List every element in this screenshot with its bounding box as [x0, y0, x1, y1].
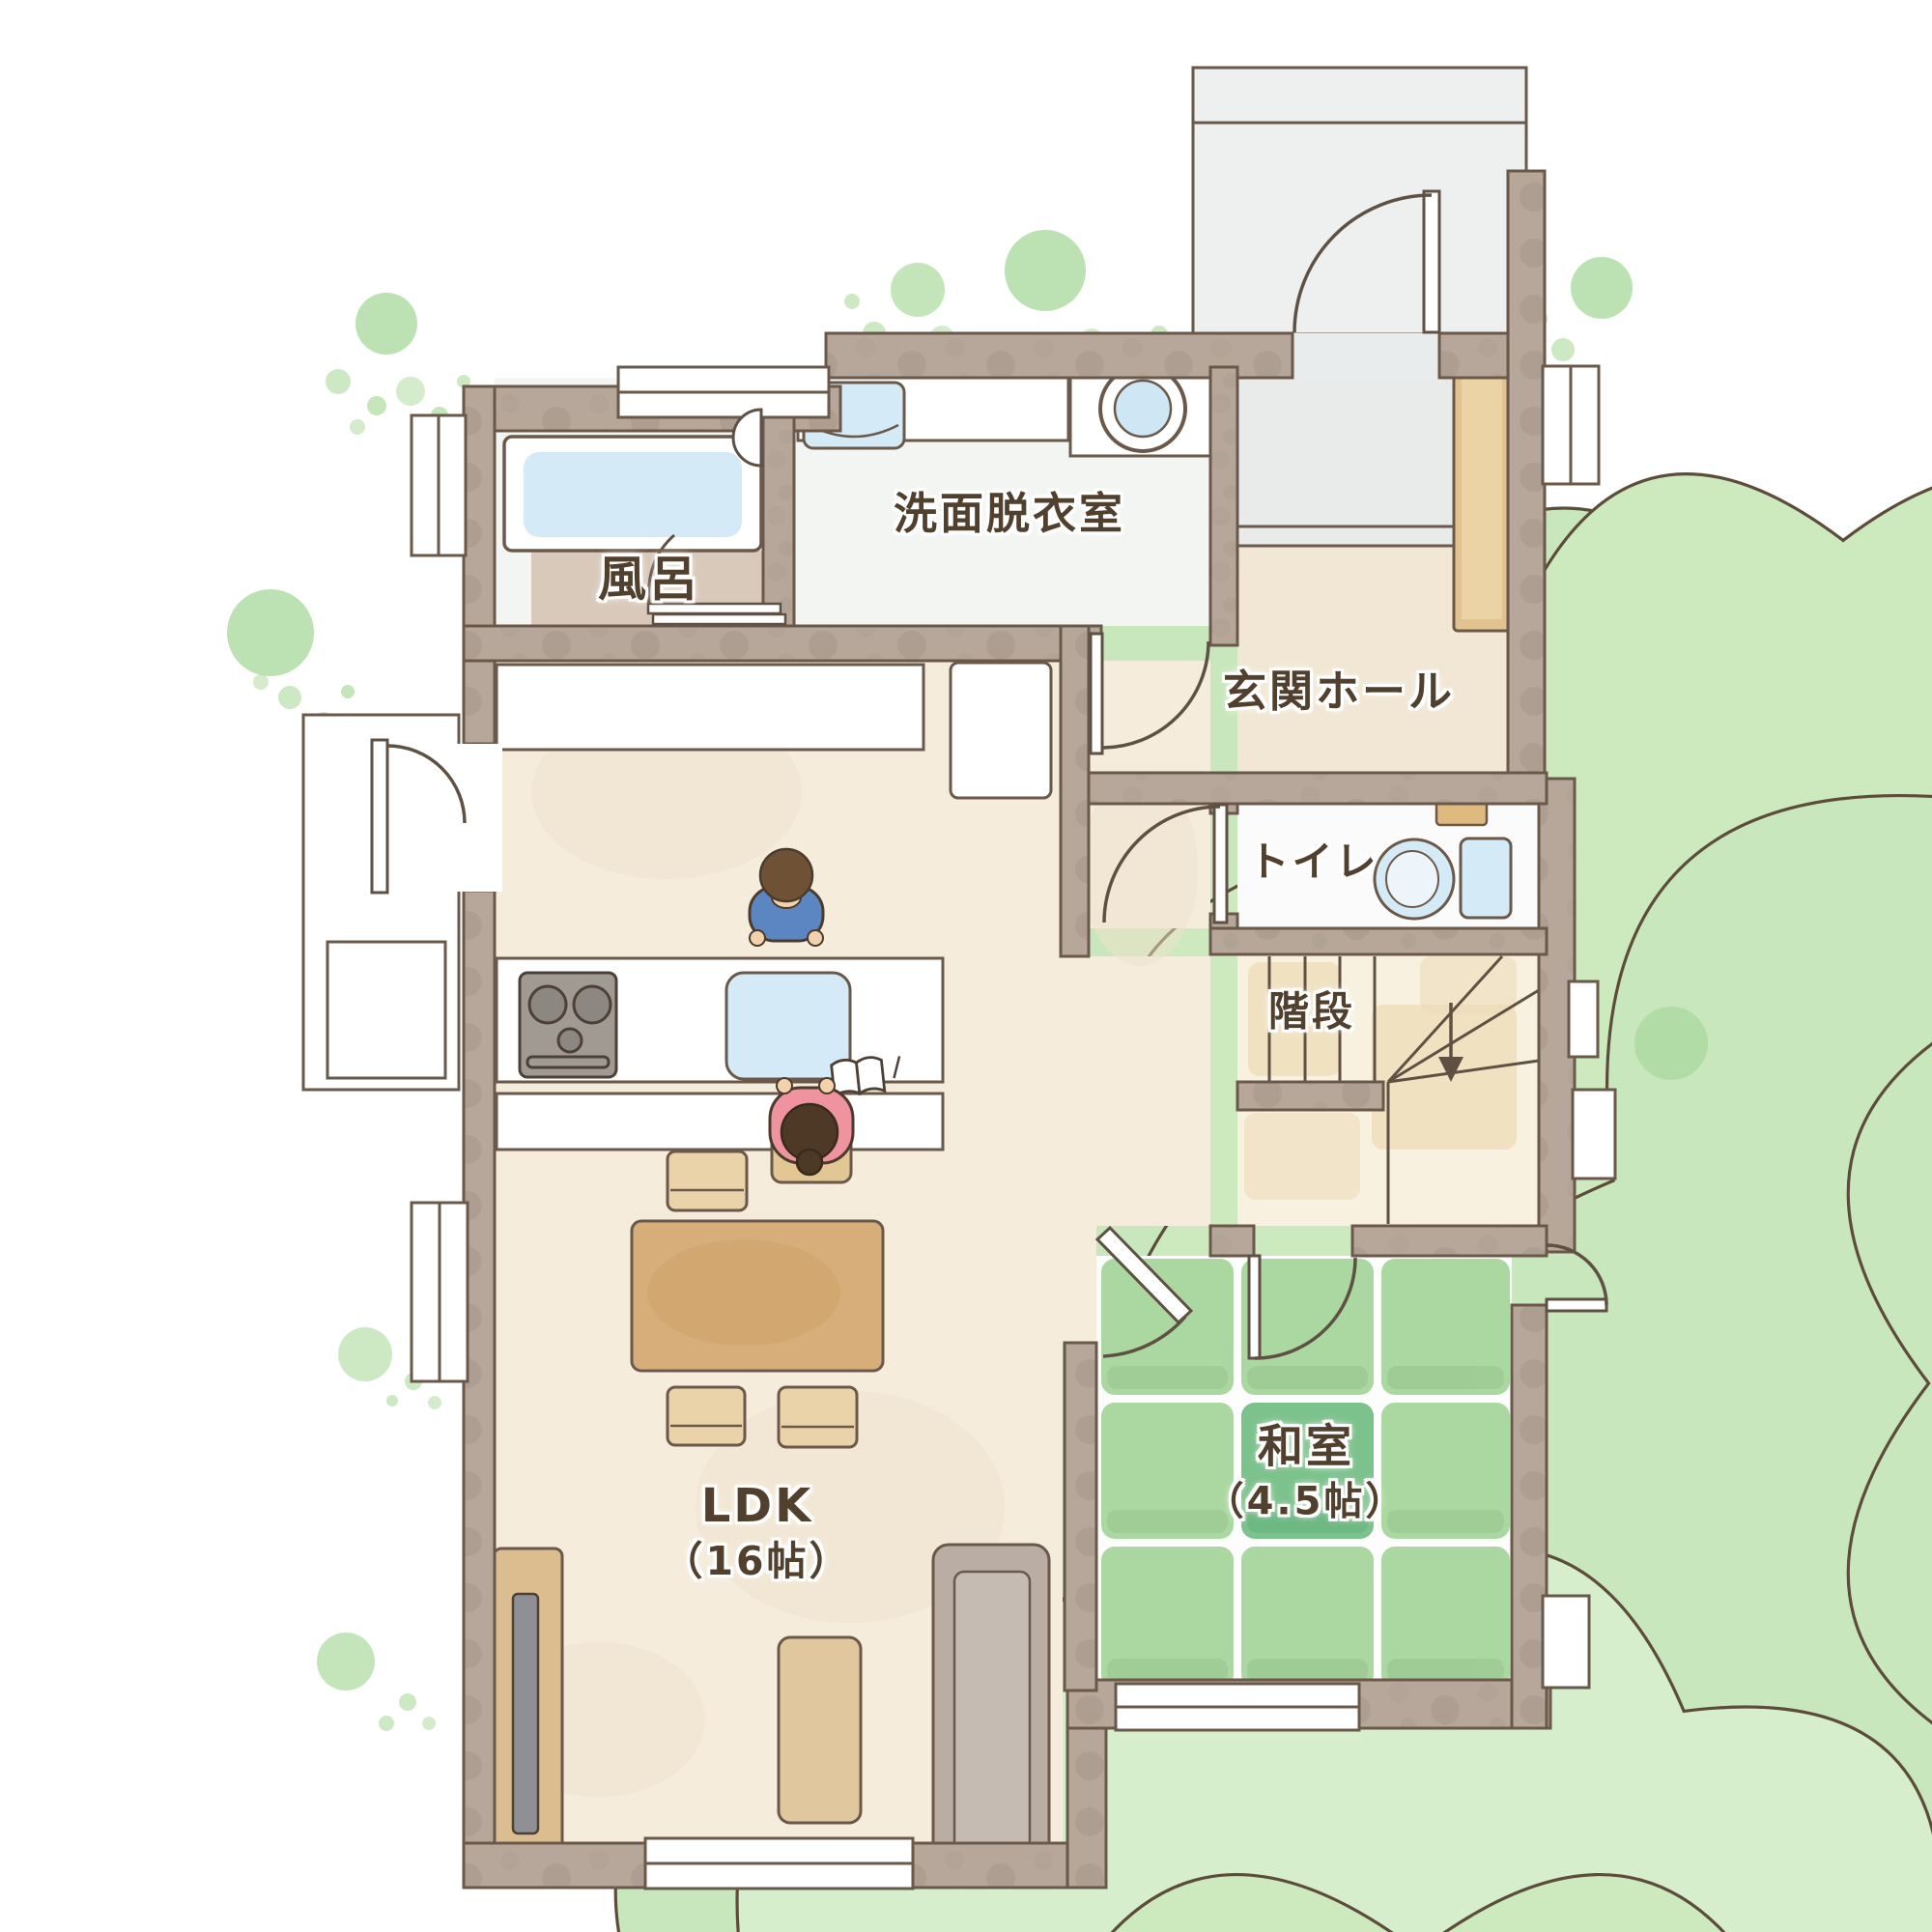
floor-plan-drawing	[0, 0, 1932, 1932]
wall	[1439, 333, 1512, 378]
shoe-cabinet	[1454, 360, 1510, 631]
entrance-hall-label-text: 玄関ホール	[1223, 666, 1455, 717]
wall	[464, 386, 495, 744]
dining-chair	[779, 1387, 857, 1447]
wall	[1237, 1082, 1383, 1110]
label-toilet: トイレ	[1248, 837, 1378, 890]
window	[1116, 1684, 1359, 1730]
bathtub	[504, 437, 761, 551]
refrigerator	[951, 663, 1051, 798]
doorway-threshold	[1293, 333, 1439, 378]
corridor-floor	[1061, 956, 1210, 1226]
kitchen-stove	[520, 973, 616, 1077]
wall	[1065, 1343, 1096, 1690]
bath-label-text: 風呂	[598, 552, 700, 608]
floor-plan: 風呂 洗面脱衣室 玄関ホール トイレ 階段 LDK （16帖） 和室 （4.5帖…	[0, 0, 1932, 1932]
window	[412, 1203, 468, 1381]
dining-chair	[668, 1387, 745, 1445]
window	[1569, 981, 1598, 1057]
wall	[1210, 367, 1237, 645]
washroom-label-text: 洗面脱衣室	[894, 488, 1125, 539]
wall	[1210, 928, 1547, 954]
window	[1543, 1596, 1589, 1688]
entrance-porch	[1193, 68, 1526, 334]
wall	[1352, 1226, 1547, 1256]
washitsu-size-text: （4.5帖）	[1206, 1477, 1407, 1527]
stairs-label-text: 階段	[1268, 988, 1355, 1036]
wall	[1508, 171, 1545, 804]
kitchen-back-counter	[497, 665, 923, 750]
washitsu-label-text: 和室	[1206, 1417, 1407, 1476]
wall	[1210, 1226, 1254, 1256]
wall	[1089, 773, 1547, 804]
label-ldk: LDK （16帖）	[663, 1476, 851, 1588]
window	[1573, 1090, 1615, 1179]
window	[618, 367, 829, 417]
kitchen-sink	[726, 973, 850, 1079]
window	[412, 415, 466, 555]
corridor-floor	[1089, 661, 1210, 773]
dining-table	[632, 1221, 883, 1371]
label-stairs: 階段	[1268, 986, 1355, 1039]
label-entrance-hall: 玄関ホール	[1223, 664, 1455, 721]
label-washroom: 洗面脱衣室	[894, 486, 1125, 543]
wall	[464, 1843, 649, 1888]
wall	[464, 626, 1101, 661]
corridor-floor	[1063, 1226, 1096, 1343]
window	[645, 1838, 913, 1889]
wall	[1061, 626, 1089, 956]
toilet-label-text: トイレ	[1248, 838, 1378, 886]
dining-chair	[668, 1151, 747, 1210]
tv-board	[494, 1548, 562, 1878]
low-table	[779, 1637, 861, 1823]
ldk-label-text: LDK	[663, 1476, 851, 1536]
label-bath: 風呂	[598, 549, 700, 611]
sofa	[933, 1545, 1049, 1878]
bar-counter	[497, 1094, 943, 1150]
label-washitsu: 和室 （4.5帖）	[1206, 1417, 1407, 1526]
tv-screen	[513, 1594, 538, 1833]
wall	[464, 891, 495, 1886]
person-sitting	[770, 1078, 853, 1182]
window	[1543, 366, 1599, 484]
ldk-size-text: （16帖）	[663, 1537, 851, 1588]
